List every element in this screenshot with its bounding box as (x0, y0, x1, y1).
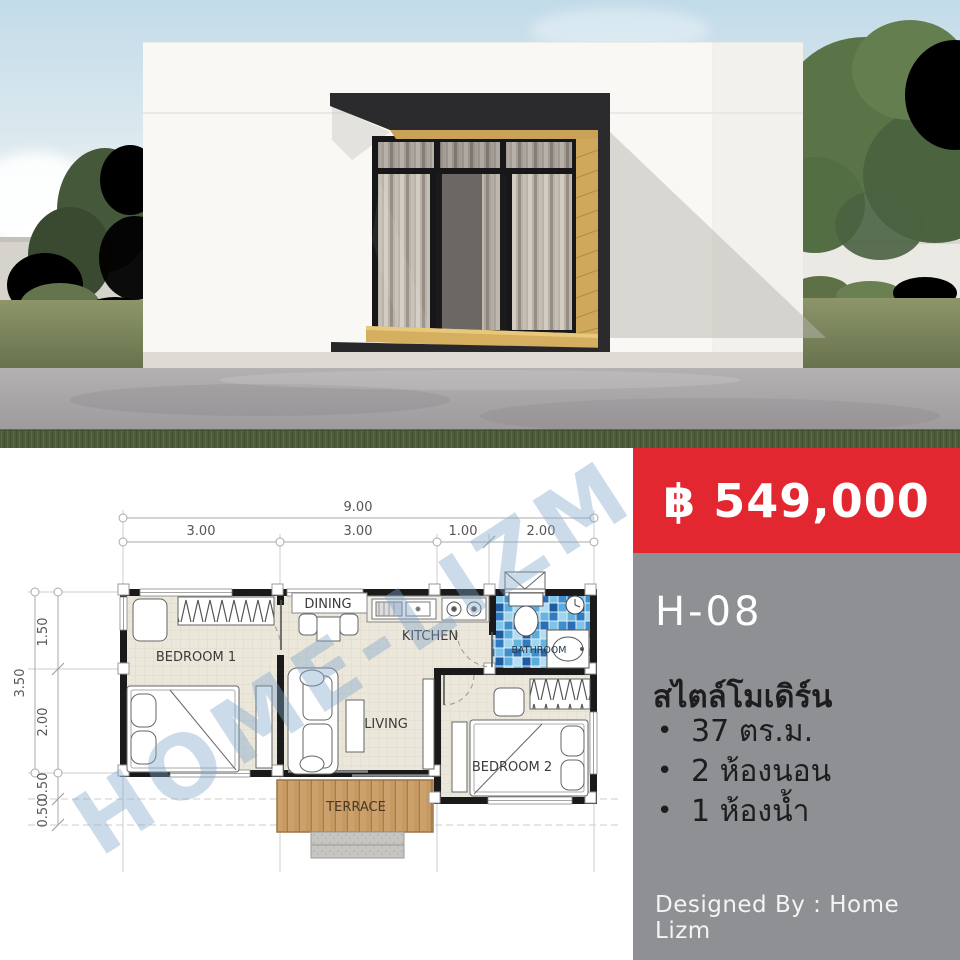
bullet-icon: • (657, 716, 691, 746)
dim-left-total: 3.50 (13, 669, 28, 698)
model-panel: H-08 สไตล์โมเดิร์น • 37 ตร.ม. • 2 ห้องนอ… (633, 553, 960, 960)
house-photo (0, 0, 960, 448)
dim-left-seg-2: 2.00 (36, 708, 51, 737)
room-label-living: LIVING (364, 717, 408, 732)
dim-left-seg-4: 0.50 (36, 799, 51, 828)
dim-left-seg-3: 0.50 (36, 773, 51, 802)
front-grass (0, 430, 960, 448)
floor-plan: 9.00 3.00 3.00 1.00 2.00 3.50 1.50 2.00 … (0, 448, 630, 960)
bullet-icon: • (657, 796, 691, 826)
dim-top-seg-2: 3.00 (344, 524, 373, 539)
spec-list: • 37 ตร.ม. • 2 ห้องนอน • 1 ห้องน้ำ (657, 711, 831, 831)
dim-left-seg-1: 1.50 (36, 618, 51, 647)
spec-item-area: • 37 ตร.ม. (657, 711, 831, 751)
spec-item-bedrooms: • 2 ห้องนอน (657, 751, 831, 791)
frame-right-column (598, 93, 610, 372)
spec-item-bathrooms: • 1 ห้องน้ำ (657, 791, 831, 831)
terrace-step-1 (311, 832, 404, 845)
gravel-strip (143, 352, 803, 370)
terrace-step-2 (311, 845, 404, 858)
room-label-terrace: TERRACE (325, 800, 386, 815)
price-text: ฿ 549,000 (663, 474, 930, 528)
info-panel: ฿ 549,000 H-08 สไตล์โมเดิร์น • 37 ตร.ม. … (633, 448, 960, 960)
model-code: H-08 (655, 589, 762, 635)
window-pane-right (512, 174, 572, 330)
lawn-left (0, 300, 150, 368)
room-label-bathroom: BATHROOM (512, 645, 567, 656)
floor-plan-svg: 9.00 3.00 3.00 1.00 2.00 3.50 1.50 2.00 … (0, 448, 630, 960)
room-label-bedroom1: BEDROOM 1 (156, 650, 236, 665)
room-label-bedroom2: BEDROOM 2 (472, 760, 552, 775)
house-photo-svg (0, 0, 960, 448)
dim-top-seg-1: 3.00 (187, 524, 216, 539)
spec-bathrooms-text: 1 ห้องน้ำ (691, 788, 809, 835)
wood-soffit (390, 130, 610, 139)
bullet-icon: • (657, 756, 691, 786)
designer-credit: Designed By : Home Lizm (655, 892, 960, 944)
price-banner: ฿ 549,000 (633, 448, 960, 553)
dim-top-total: 9.00 (344, 500, 373, 515)
